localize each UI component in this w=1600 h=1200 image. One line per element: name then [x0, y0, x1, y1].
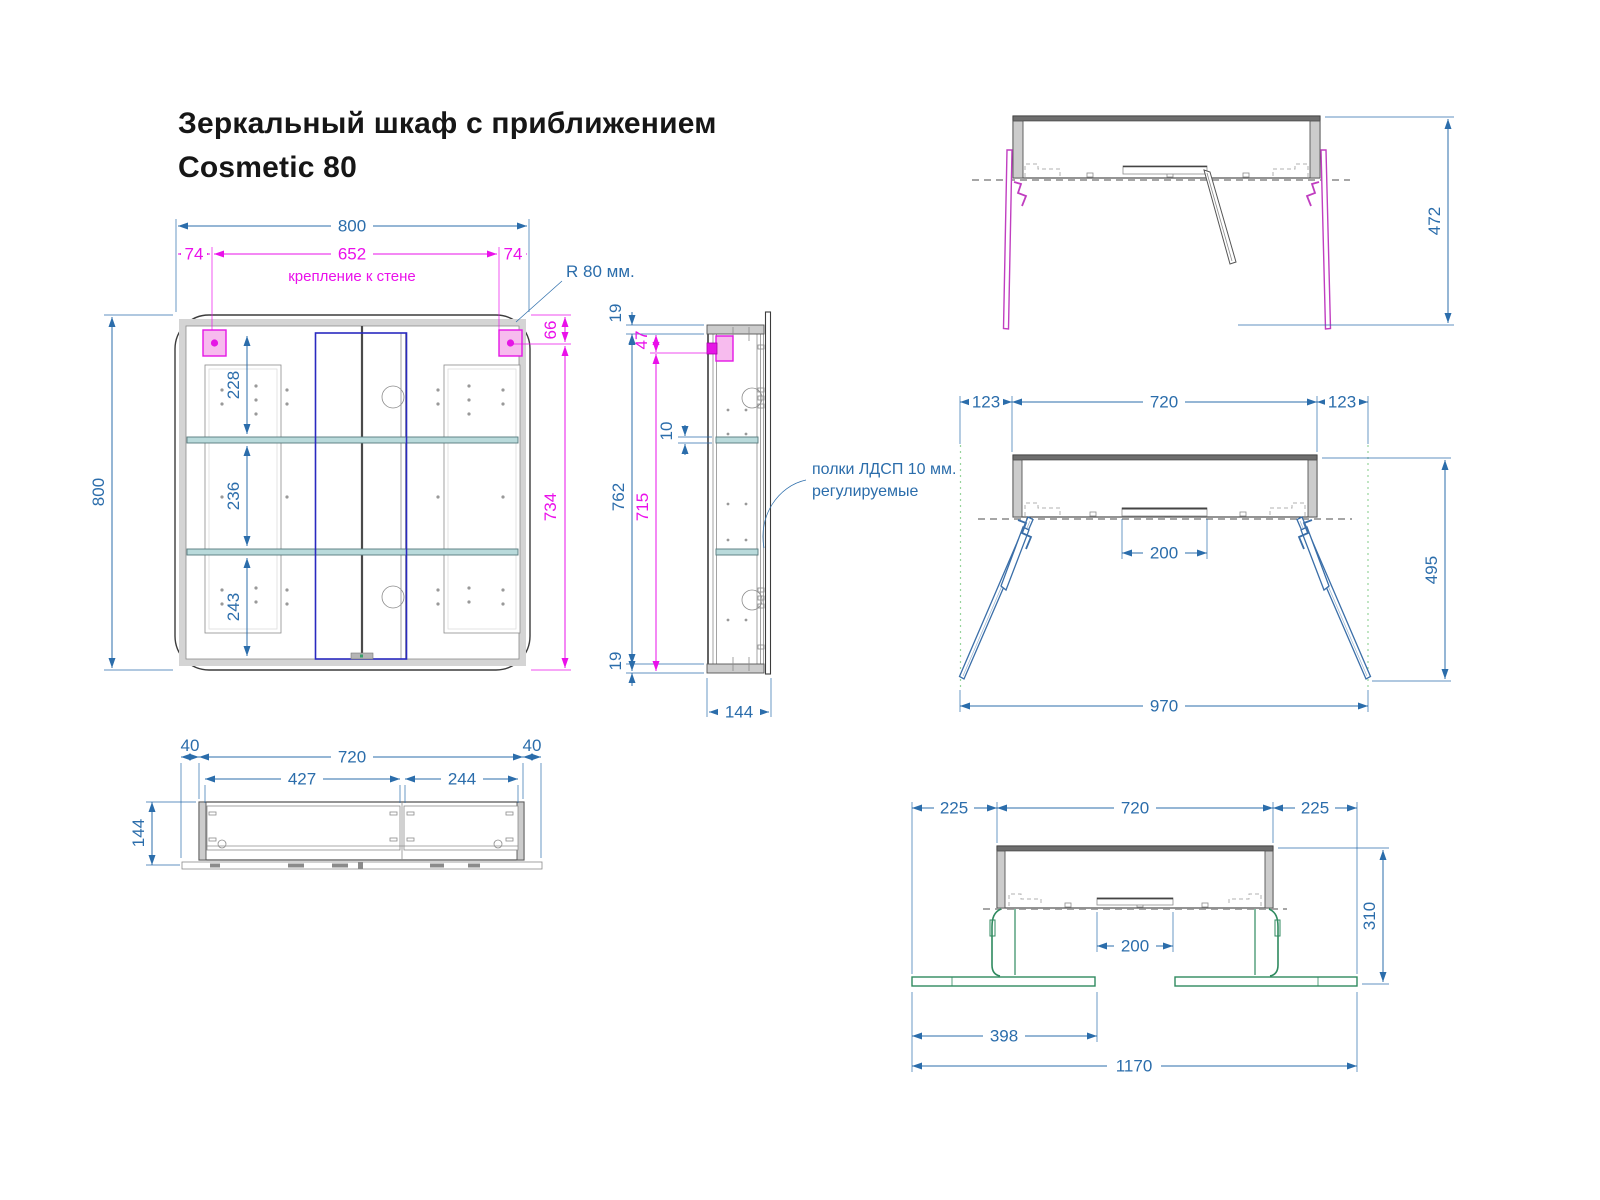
door-left-plan — [207, 806, 400, 850]
mirror-arm-swung — [1204, 170, 1236, 264]
view-45-extension-lines — [960, 396, 1451, 712]
dim-inner-height: 762 — [609, 483, 628, 511]
drawing-sheet: Зеркальный шкаф с приближением Cosmetic … — [0, 0, 1600, 1200]
dim-45-door-left: 123 — [972, 393, 1000, 412]
door-handle-logo — [351, 653, 373, 659]
dim-flat-body-width: 720 — [1121, 799, 1149, 818]
dim-45-depth-open: 495 — [1422, 556, 1441, 584]
dim-mount-offset-left: 74 — [185, 245, 204, 264]
dim-section-top: 228 — [224, 371, 243, 399]
hinge-arm-left-flat — [992, 909, 1001, 976]
dim-flat-mirror-width: 200 — [1121, 937, 1149, 956]
dim-total-height: 800 — [89, 478, 108, 506]
dim-section-middle: 236 — [224, 482, 243, 510]
dim-side-left: 40 — [181, 736, 200, 755]
dim-body-width: 720 — [338, 748, 366, 767]
mount-note-label: крепление к стене — [288, 268, 416, 285]
dim-flat-door-panel: 398 — [990, 1027, 1018, 1046]
dim-flat-total-width: 1170 — [1116, 1057, 1153, 1076]
door-left-open-90 — [1004, 150, 1013, 329]
dim-45-body-width: 720 — [1150, 393, 1178, 412]
dim-top-to-mount: 66 — [541, 321, 560, 340]
hinge-slide-right-45 — [1301, 527, 1329, 590]
dim-mount-span: 652 — [338, 245, 366, 264]
door-right-open-flat — [1175, 977, 1357, 986]
view-45-dimensions: 123 720 123 200 495 970 — [960, 393, 1445, 716]
wall-bracket-profile — [707, 336, 733, 361]
corner-radius-label: R 80 мм. — [566, 262, 635, 281]
glass-shelf-lower-profile — [716, 549, 758, 555]
wall-bracket-left — [203, 330, 226, 356]
hinge-arm-right-90 — [1307, 182, 1319, 206]
dim-depth-open-90: 472 — [1425, 207, 1444, 235]
dim-door-left: 427 — [288, 770, 316, 789]
glass-shelf-upper — [187, 437, 518, 443]
dim-depth: 144 — [725, 703, 753, 722]
door-right-open-90 — [1321, 150, 1331, 329]
dim-45-door-right: 123 — [1328, 393, 1356, 412]
top-view-closed — [182, 802, 542, 869]
hinge-arm-right-flat — [1269, 909, 1278, 976]
top-panel — [707, 325, 764, 334]
hinge-arm-left-90 — [1014, 182, 1026, 206]
side-view-dimensions: 19 47 762 715 10 19 144 полки ЛДСП 10 мм… — [606, 304, 956, 722]
view-doors-open-45 — [960, 445, 1371, 688]
dim-side-right: 40 — [523, 736, 542, 755]
dim-top-panel: 19 — [606, 304, 625, 323]
view-doors-open-90 — [972, 116, 1350, 329]
dim-flat-depth-open: 310 — [1360, 902, 1379, 930]
dim-total-width: 800 — [338, 217, 366, 236]
dim-door-right: 244 — [448, 770, 476, 789]
dim-mount-to-bottom-side: 715 — [633, 493, 652, 521]
hinge-cup-top-profile — [742, 388, 762, 408]
shelf-pin-panel-right — [436, 365, 520, 633]
side-view — [707, 312, 771, 674]
dim-45-mirror-width: 200 — [1150, 544, 1178, 563]
glass-shelf-upper-profile — [716, 437, 758, 443]
mirror-door-profile — [766, 312, 771, 674]
wall-bracket-right — [499, 330, 522, 356]
shelf-note-line-2: регулируемые — [812, 483, 918, 500]
dim-shelf-thickness: 10 — [657, 422, 676, 441]
door-right-plan — [404, 806, 518, 850]
hinge-slide-left-45 — [1001, 527, 1029, 590]
bottom-panel — [707, 664, 764, 673]
dim-mount-offset-right: 74 — [504, 245, 523, 264]
glass-shelf-lower — [187, 549, 518, 555]
shelf-note-line-1: полки ЛДСП 10 мм. — [812, 461, 956, 478]
dim-mount-to-bottom: 734 — [541, 493, 560, 521]
view-doors-open-flat — [912, 846, 1357, 986]
dim-flat-door-right: 225 — [1301, 799, 1329, 818]
dim-45-total-width: 970 — [1150, 697, 1178, 716]
door-left-open-flat — [912, 977, 1095, 986]
dim-section-bottom: 243 — [224, 593, 243, 621]
dim-depth-plan: 144 — [129, 819, 148, 847]
dim-bottom-panel: 19 — [606, 652, 625, 671]
dim-top-to-mount-side: 47 — [632, 331, 651, 350]
drawing-canvas: 800 74 652 74 крепление к стене R 80 мм.… — [0, 0, 1600, 1200]
dim-flat-door-left: 225 — [940, 799, 968, 818]
view-flat-dimensions: 225 720 225 200 310 398 1170 — [912, 799, 1383, 1076]
